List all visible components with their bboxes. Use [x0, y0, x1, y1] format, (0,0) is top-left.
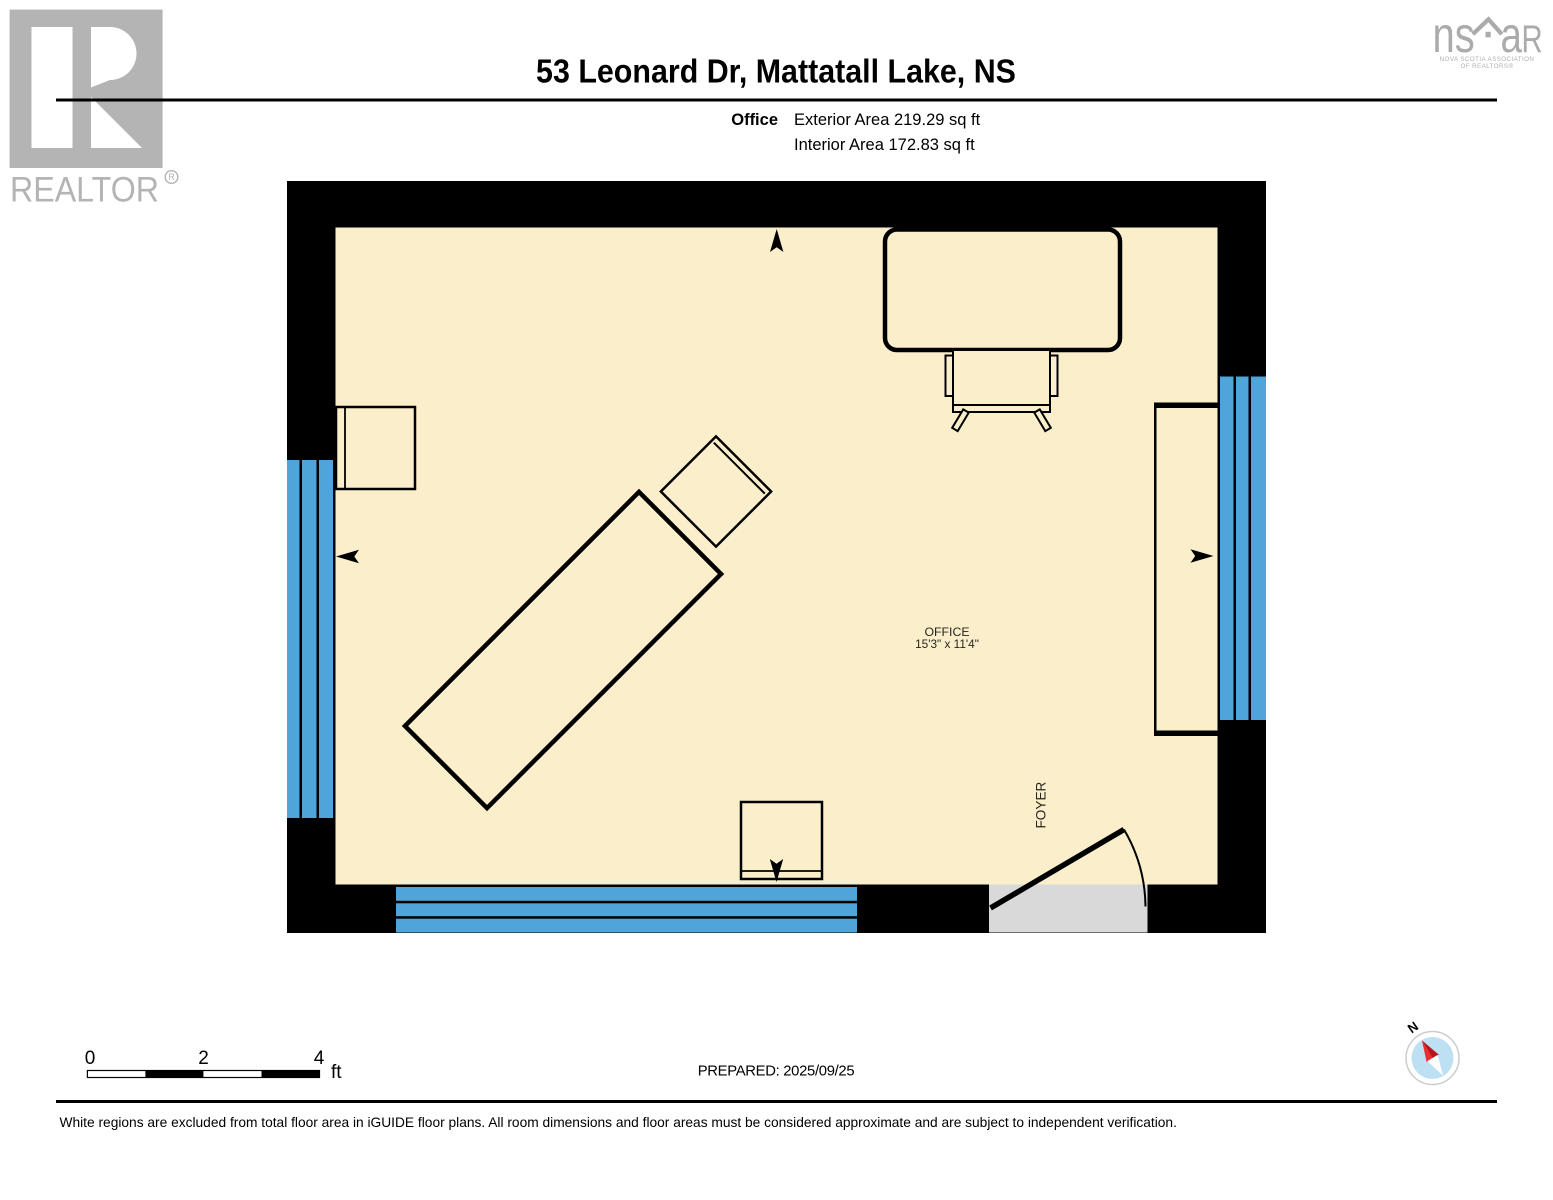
svg-text:Interior Area 172.83 sq ft: Interior Area 172.83 sq ft	[794, 136, 975, 154]
svg-text:Exterior Area 219.29 sq ft: Exterior Area 219.29 sq ft	[794, 111, 981, 129]
svg-text:15'3" x 11'4": 15'3" x 11'4"	[915, 637, 979, 651]
svg-text:R: R	[1522, 18, 1543, 61]
svg-text:4: 4	[314, 1048, 325, 1069]
svg-text:2: 2	[198, 1048, 209, 1069]
svg-text:PREPARED: 2025/09/25: PREPARED: 2025/09/25	[698, 1064, 855, 1080]
svg-text:R: R	[168, 172, 175, 182]
svg-text:FOYER: FOYER	[1034, 781, 1049, 828]
svg-text:ft: ft	[331, 1062, 342, 1083]
svg-text:a: a	[1501, 8, 1523, 63]
svg-text:White regions are excluded fro: White regions are excluded from total fl…	[60, 1115, 1177, 1130]
svg-text:Office: Office	[731, 111, 778, 129]
svg-text:OF REALTORS®: OF REALTORS®	[1460, 63, 1513, 70]
svg-text:53 Leonard Dr, Mattatall Lake,: 53 Leonard Dr, Mattatall Lake, NS	[536, 52, 1016, 90]
svg-text:ns: ns	[1433, 7, 1475, 63]
svg-text:REALTOR: REALTOR	[10, 171, 159, 210]
svg-text:0: 0	[85, 1048, 96, 1069]
